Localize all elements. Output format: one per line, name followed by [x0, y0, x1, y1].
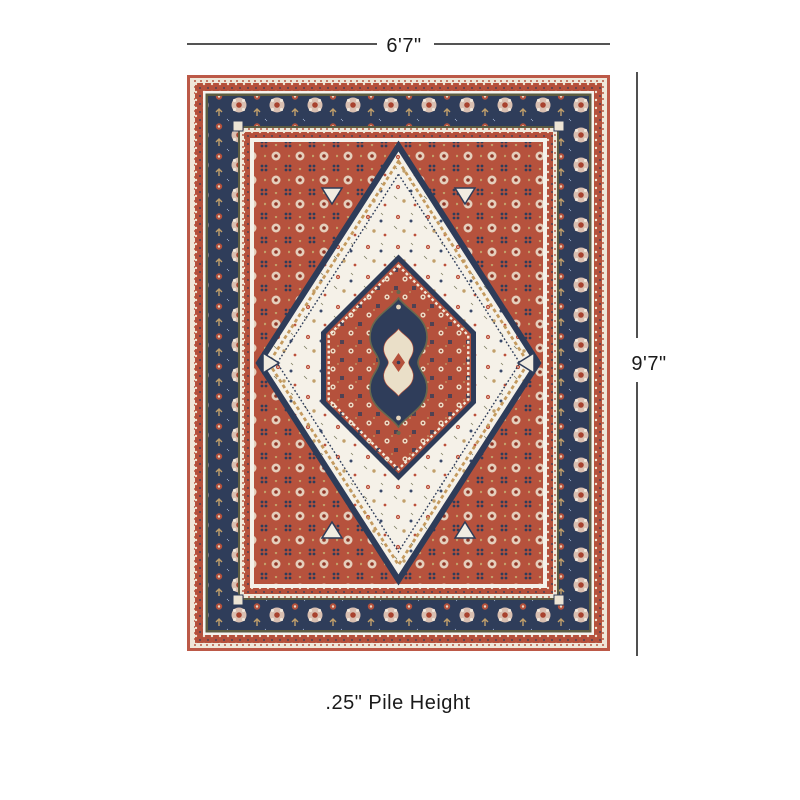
product-dimension-diagram: 6'7" 9'7" .25" Pile Height	[0, 0, 800, 800]
rug-image	[187, 75, 610, 651]
height-dimension-label: 9'7"	[631, 353, 666, 375]
pile-height-label: .25" Pile Height	[325, 692, 470, 714]
width-dimension-label: 6'7"	[386, 35, 421, 57]
diagram-canvas: 6'7" 9'7" .25" Pile Height	[0, 0, 800, 800]
